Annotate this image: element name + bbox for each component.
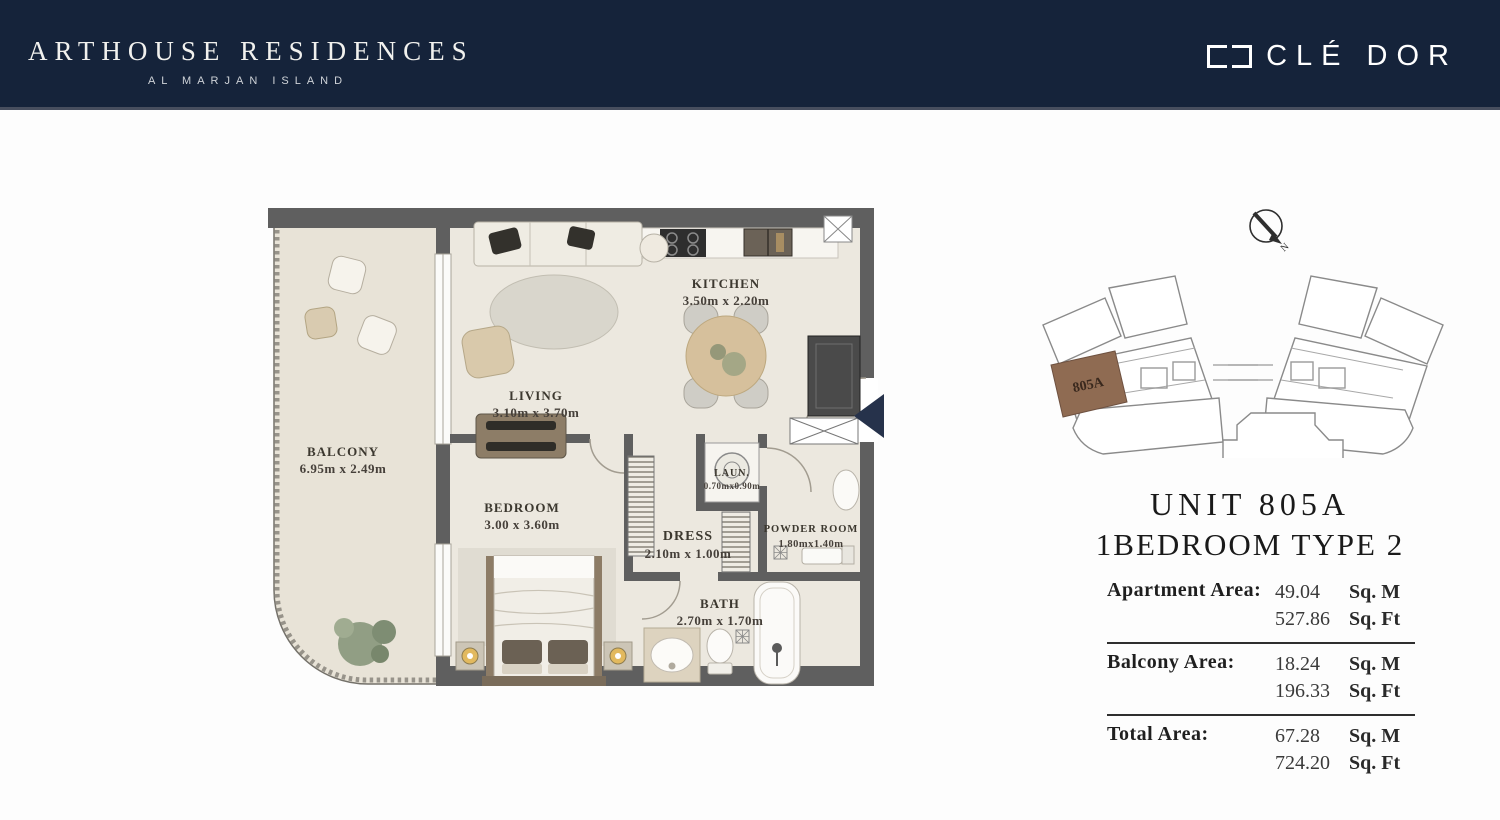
room-label-balcony: BALCONY [307,444,379,459]
room-label-laundry: LAUN. [714,468,750,479]
bracket-right-icon [1232,45,1252,68]
compass: N [1240,202,1306,268]
bracket-left-icon [1207,45,1227,68]
brand-subtitle: AL MARJAN ISLAND [28,75,468,87]
table-row-total: Total Area: 67.28Sq. M 724.20Sq. Ft [1107,714,1415,786]
balcony-pouf [304,306,338,340]
bed [482,556,606,686]
floor-plan: BALCONY 6.95m x 2.49m LIVING 3.10m x 3.7… [268,196,893,701]
room-label-dress: DRESS [663,529,713,544]
armchair [460,324,516,380]
sofa [474,222,668,266]
room-dims-dress: 2.10m x 1.00m [645,546,732,561]
wardrobe [628,456,654,556]
sqm-value: 18.24 [1275,651,1349,678]
cledor-brackets-icon [1207,45,1252,68]
sqm-value: 67.28 [1275,723,1349,750]
room-label-living: LIVING [509,388,563,403]
sqft-unit: Sq. Ft [1349,750,1400,777]
bath-toilet [707,629,733,663]
room-dims-powder: 1.80mx1.40m [779,539,844,550]
room-dims-laundry: 0.70mx0.90m [704,481,761,491]
brand-block: ARTHOUSE RESIDENCES AL MARJAN ISLAND [28,36,468,87]
table-row-apartment: Apartment Area: 49.04Sq. M 527.86Sq. Ft [1107,572,1415,642]
area-table: Apartment Area: 49.04Sq. M 527.86Sq. Ft … [1107,572,1415,786]
unit-title: UNIT 805A 1BEDROOM TYPE 2 [1055,486,1445,563]
sqm-unit: Sq. M [1349,651,1400,678]
room-label-bath: BATH [700,596,740,611]
unit-type: 1BEDROOM TYPE 2 [1055,527,1445,563]
room-label-powder: POWDER ROOM [764,524,859,535]
cledor-logo-text: CLÉ DOR [1266,40,1458,73]
dining-table [684,304,768,408]
room-dims-living: 3.10m x 3.70m [493,405,580,420]
floor-plan-svg: BALCONY 6.95m x 2.49m LIVING 3.10m x 3.7… [268,196,893,701]
sqft-unit: Sq. Ft [1349,606,1400,633]
sqft-value: 724.20 [1275,750,1349,777]
powder-toilet [802,548,842,564]
room-label-kitchen: KITCHEN [692,276,760,291]
row-label: Total Area: [1107,723,1275,777]
cledor-logo: CLÉ DOR [1207,40,1458,73]
unit-number: UNIT 805A [1055,486,1445,523]
room-dims-kitchen: 3.50m x 2.20m [683,293,770,308]
sqm-value: 49.04 [1275,579,1349,606]
brand-title: ARTHOUSE RESIDENCES [28,36,468,67]
sqm-unit: Sq. M [1349,579,1400,606]
room-dims-balcony: 6.95m x 2.49m [300,461,387,476]
key-plan: 805A [1023,270,1463,462]
row-label: Balcony Area: [1107,651,1275,705]
table-row-balcony: Balcony Area: 18.24Sq. M 196.33Sq. Ft [1107,642,1415,714]
header-bar: ARTHOUSE RESIDENCES AL MARJAN ISLAND CLÉ… [0,0,1500,110]
sqm-unit: Sq. M [1349,723,1400,750]
powder-sink [833,470,859,510]
side-table [640,234,668,262]
sqft-value: 196.33 [1275,678,1349,705]
wardrobe [722,512,750,572]
tv-console [476,414,566,458]
room-label-bedroom: BEDROOM [484,500,560,515]
row-label: Apartment Area: [1107,579,1275,633]
room-dims-bath: 2.70m x 1.70m [677,613,764,628]
sqft-value: 527.86 [1275,606,1349,633]
room-dims-bedroom: 3.00 x 3.60m [484,517,559,532]
sqft-unit: Sq. Ft [1349,678,1400,705]
compass-north-label: N [1279,241,1292,254]
